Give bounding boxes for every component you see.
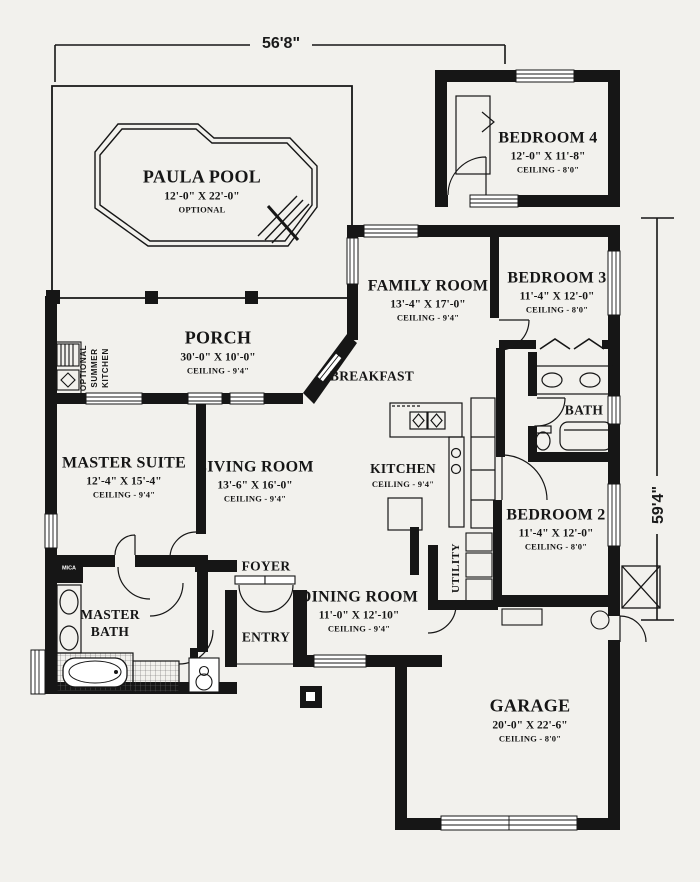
garage-fixtures xyxy=(502,609,609,629)
entry-door-leaves xyxy=(235,576,295,584)
utility-appliances xyxy=(466,533,492,603)
label-master-suite: MASTER SUITE 12'-4" X 15'-4" CEILING - 9… xyxy=(62,454,186,501)
label-family-room: FAMILY ROOM 13'-4" X 17'-0" CEILING - 9'… xyxy=(368,277,488,324)
label-bedroom4: BEDROOM 4 12'-0" X 11'-8" CEILING - 8'0" xyxy=(498,129,597,176)
shower xyxy=(133,661,179,692)
label-kitchen: KITCHEN CEILING - 9'4" xyxy=(370,461,436,490)
label-bedroom2: BEDROOM 2 11'-4" X 12'-0" CEILING - 8'0" xyxy=(506,506,605,553)
label-mica-cabinet: MICA xyxy=(62,566,76,573)
label-entry: ENTRY xyxy=(242,630,290,647)
entry-column xyxy=(300,686,322,708)
label-summer-kitchen: OPTIONAL SUMMER KITCHEN xyxy=(79,345,111,391)
label-bath: BATH xyxy=(565,403,603,420)
label-master-bath: MASTER BATH xyxy=(80,607,140,641)
label-foyer: FOYER xyxy=(242,559,291,576)
floor-plan: 56'8" 59'4" PAULA POOL 12'-0" X 22'-0" O… xyxy=(0,0,700,882)
dimension-width-label: 56'8" xyxy=(262,35,300,53)
label-dining-room: DINING ROOM 11'-0" X 12'-10" CEILING - 9… xyxy=(300,588,418,635)
ac-pad xyxy=(622,566,660,608)
summer-kitchen-fixtures xyxy=(55,342,81,394)
closet-doors xyxy=(540,339,604,349)
label-utility: UTILITY xyxy=(450,543,464,593)
label-bedroom3: BEDROOM 3 11'-4" X 12'-0" CEILING - 8'0" xyxy=(507,269,606,316)
porch-columns xyxy=(46,290,258,304)
label-pool: PAULA POOL 12'-0" X 22'-0" OPTIONAL xyxy=(143,165,261,215)
label-living-room: LIVING ROOM 13'-6" X 16'-0" CEILING - 9'… xyxy=(196,458,314,505)
label-garage: GARAGE 20'-0" X 22'-6" CEILING - 8'0" xyxy=(490,694,571,744)
label-breakfast: BREAKFAST xyxy=(330,369,414,386)
bedroom4-closet xyxy=(456,96,490,174)
label-porch: PORCH 30'-0" X 10'-0" CEILING - 9'4" xyxy=(180,326,255,376)
dimension-height-label: 59'4" xyxy=(650,486,668,524)
